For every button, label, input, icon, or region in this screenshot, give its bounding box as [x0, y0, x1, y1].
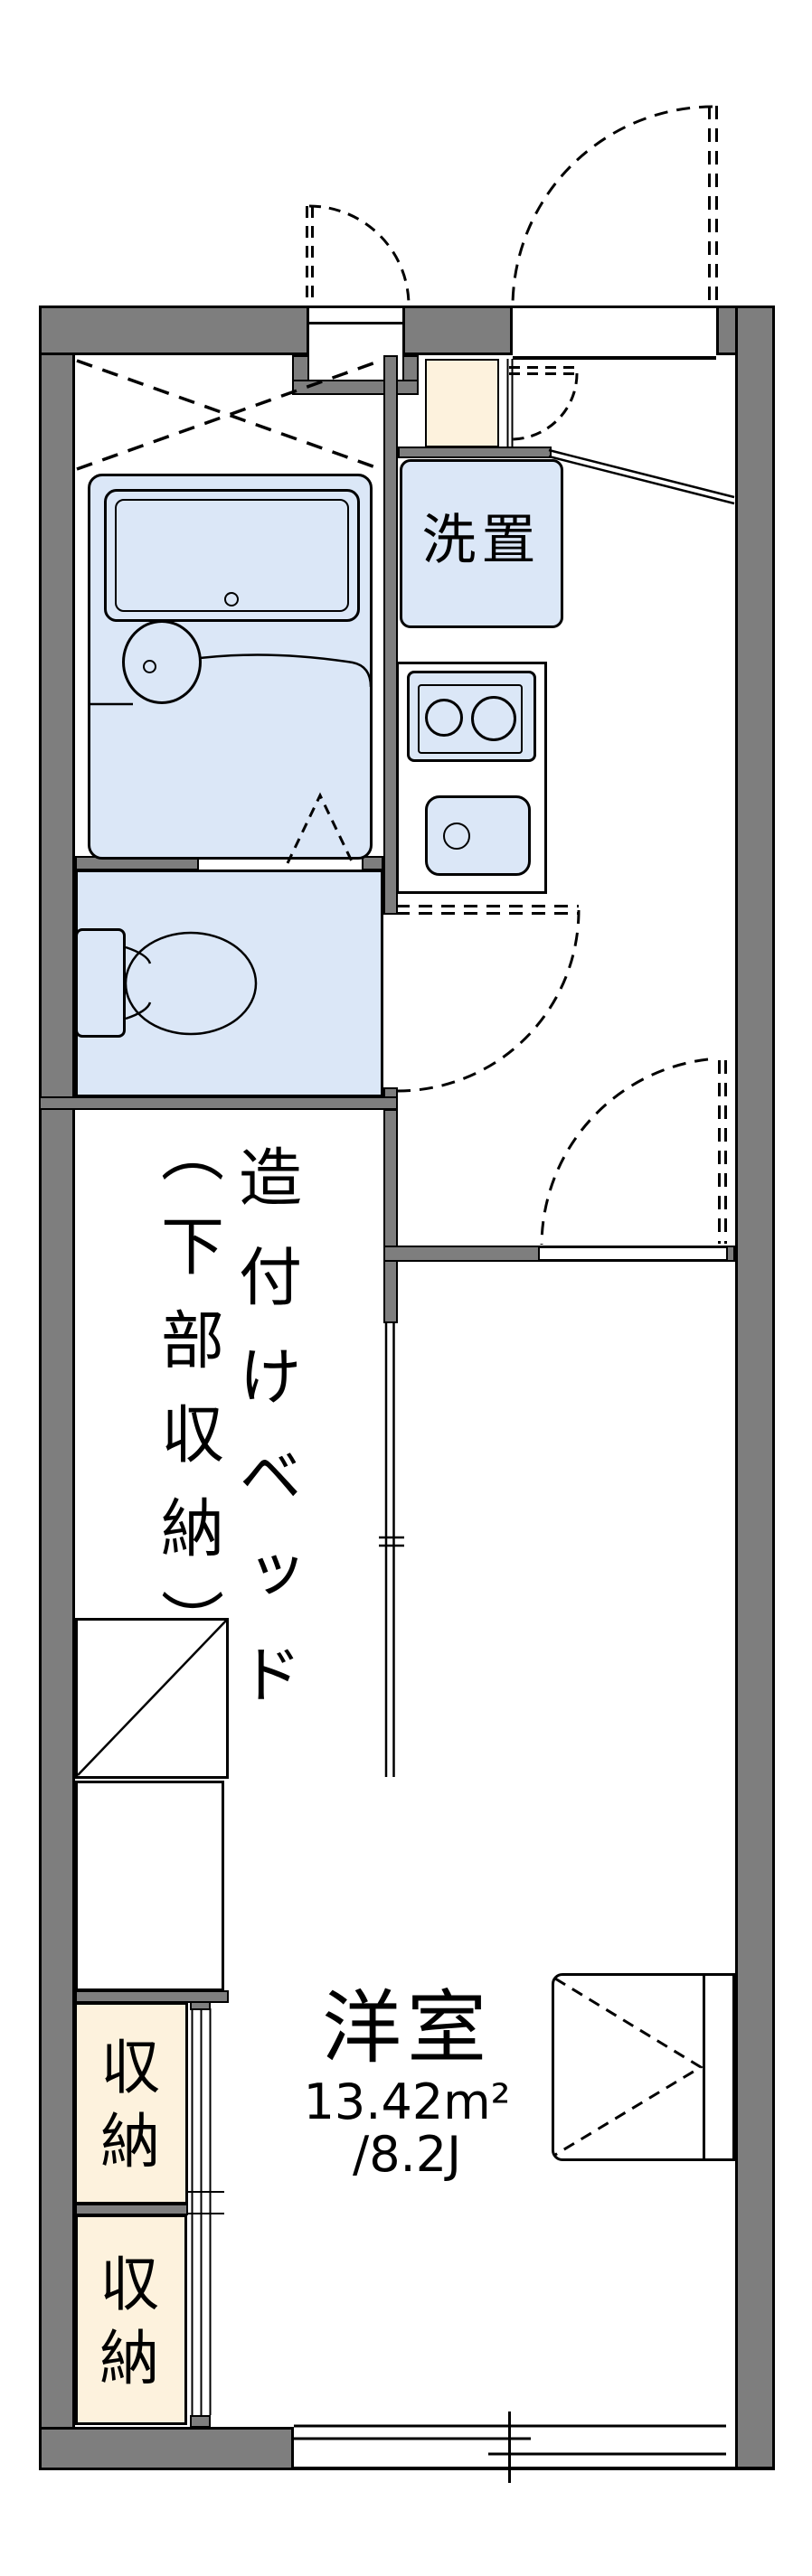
bath-upper-x-mark	[77, 361, 381, 469]
bathtub-drain	[224, 592, 239, 606]
water-heater-compartment	[425, 359, 499, 447]
room-area-label: 13.42m²	[289, 2077, 524, 2129]
closet-sliding-track-lines	[186, 2008, 224, 2415]
entry-door-swing-icon	[513, 106, 717, 305]
entrance-opening-top-line	[513, 306, 716, 308]
storage-lower-label: 収納	[93, 2252, 156, 2401]
toilet-tank	[75, 928, 126, 1038]
wall-bottom	[39, 2427, 294, 2470]
hall-opening-bottom-line	[540, 1259, 726, 1262]
right-wall-window-unit-divider	[703, 1976, 705, 2158]
wall-left	[39, 306, 75, 2470]
wall-top-left-segment	[39, 306, 309, 355]
bed-label-sub: （下部収納）	[154, 1119, 221, 1683]
wash-basin-faucet	[143, 660, 156, 673]
wash-basin	[122, 620, 202, 704]
washer-label: 洗置	[400, 512, 563, 569]
bed-front-edge-lines	[379, 1321, 404, 1777]
alcove-door-swing-icon	[307, 206, 410, 306]
bed-label-main: 造付けベッド	[231, 1144, 298, 1741]
bottom-window-base-line	[294, 2467, 775, 2470]
wall-bed-top	[39, 1096, 398, 1110]
alcove-opening-top-line	[309, 306, 402, 308]
room-door-swing-icon	[542, 1059, 726, 1245]
compartment-side-lines	[508, 359, 513, 447]
room-name-label: 洋室	[298, 1987, 515, 2070]
kitchen-sink-drain	[443, 823, 470, 850]
hall-opening-top-line	[540, 1246, 726, 1248]
alcove-door-panel-line	[309, 322, 402, 324]
wall-top-middle-segment	[402, 306, 513, 355]
wall-hallway	[383, 1246, 540, 1262]
bed-foot-box-plain	[75, 1781, 224, 1991]
washroom-door-swing-icon	[396, 907, 579, 1092]
right-wall-window-unit	[552, 1973, 735, 2161]
storage-upper-label: 収納	[94, 2035, 156, 2184]
stove-burner-right	[471, 696, 516, 741]
wall-bed-right	[383, 1109, 398, 1323]
wall-right	[735, 306, 775, 2470]
room-tatami-label: /8.2J	[289, 2129, 524, 2181]
entrance-threshold-line	[513, 356, 716, 360]
wall-hallway-stub	[726, 1246, 735, 1262]
wall-bath-bottom-right	[362, 856, 383, 870]
shelf-band-step	[190, 2001, 211, 2010]
kitchen-sink	[425, 795, 531, 876]
alcove-sill	[292, 380, 419, 395]
balcony-sliding-window-icon	[294, 2411, 726, 2483]
washer-bay-top-band	[398, 447, 552, 458]
compartment-door-swing-icon	[509, 368, 577, 440]
entry-step-lines	[549, 450, 734, 503]
stove-burner-left	[425, 699, 463, 737]
floorplan-canvas: 洗置 収納 収納 造付けベッド （下部収納） 洋室 13.42m² /8.2J	[0, 0, 812, 2576]
storage-bottom-step	[190, 2415, 211, 2428]
